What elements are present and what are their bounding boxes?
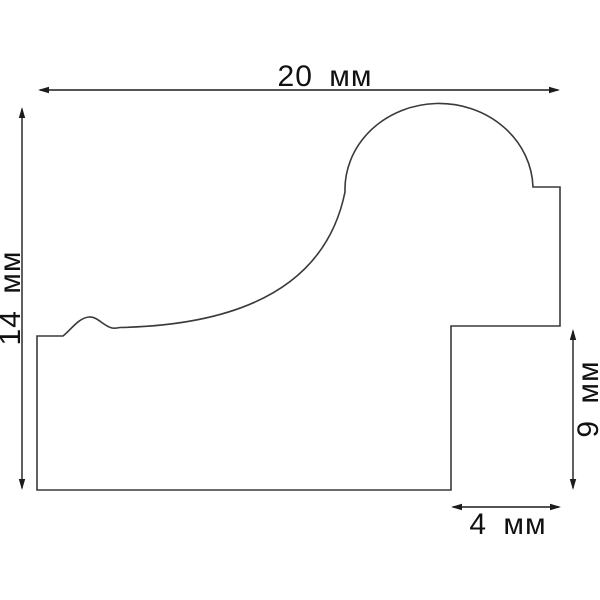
dimension-width-label: 20 мм <box>278 60 373 93</box>
arrow-right-icon <box>550 504 561 510</box>
dimension-height-label: 14 мм <box>0 251 27 346</box>
technical-drawing-canvas: 20 мм 14 мм 9 мм 4 мм <box>0 0 600 600</box>
dimension-bottom-width: 4 мм <box>451 504 561 541</box>
moulding-profile-drawing: 20 мм 14 мм 9 мм 4 мм <box>0 0 600 600</box>
arrow-down-icon <box>19 479 25 490</box>
dimension-width: 20 мм <box>38 60 560 93</box>
arrow-left-icon <box>38 87 49 93</box>
arrow-right-icon <box>549 87 560 93</box>
dimension-bottom-width-label: 4 мм <box>469 508 546 541</box>
moulding-profile-outline <box>37 103 560 490</box>
arrow-up-icon <box>570 329 576 340</box>
arrow-down-icon <box>570 479 576 490</box>
dimension-height: 14 мм <box>0 107 27 490</box>
dimension-right-height: 9 мм <box>570 329 600 490</box>
arrow-left-icon <box>451 504 462 510</box>
arrow-up-icon <box>19 107 25 118</box>
dimension-right-height-label: 9 мм <box>572 360 600 437</box>
